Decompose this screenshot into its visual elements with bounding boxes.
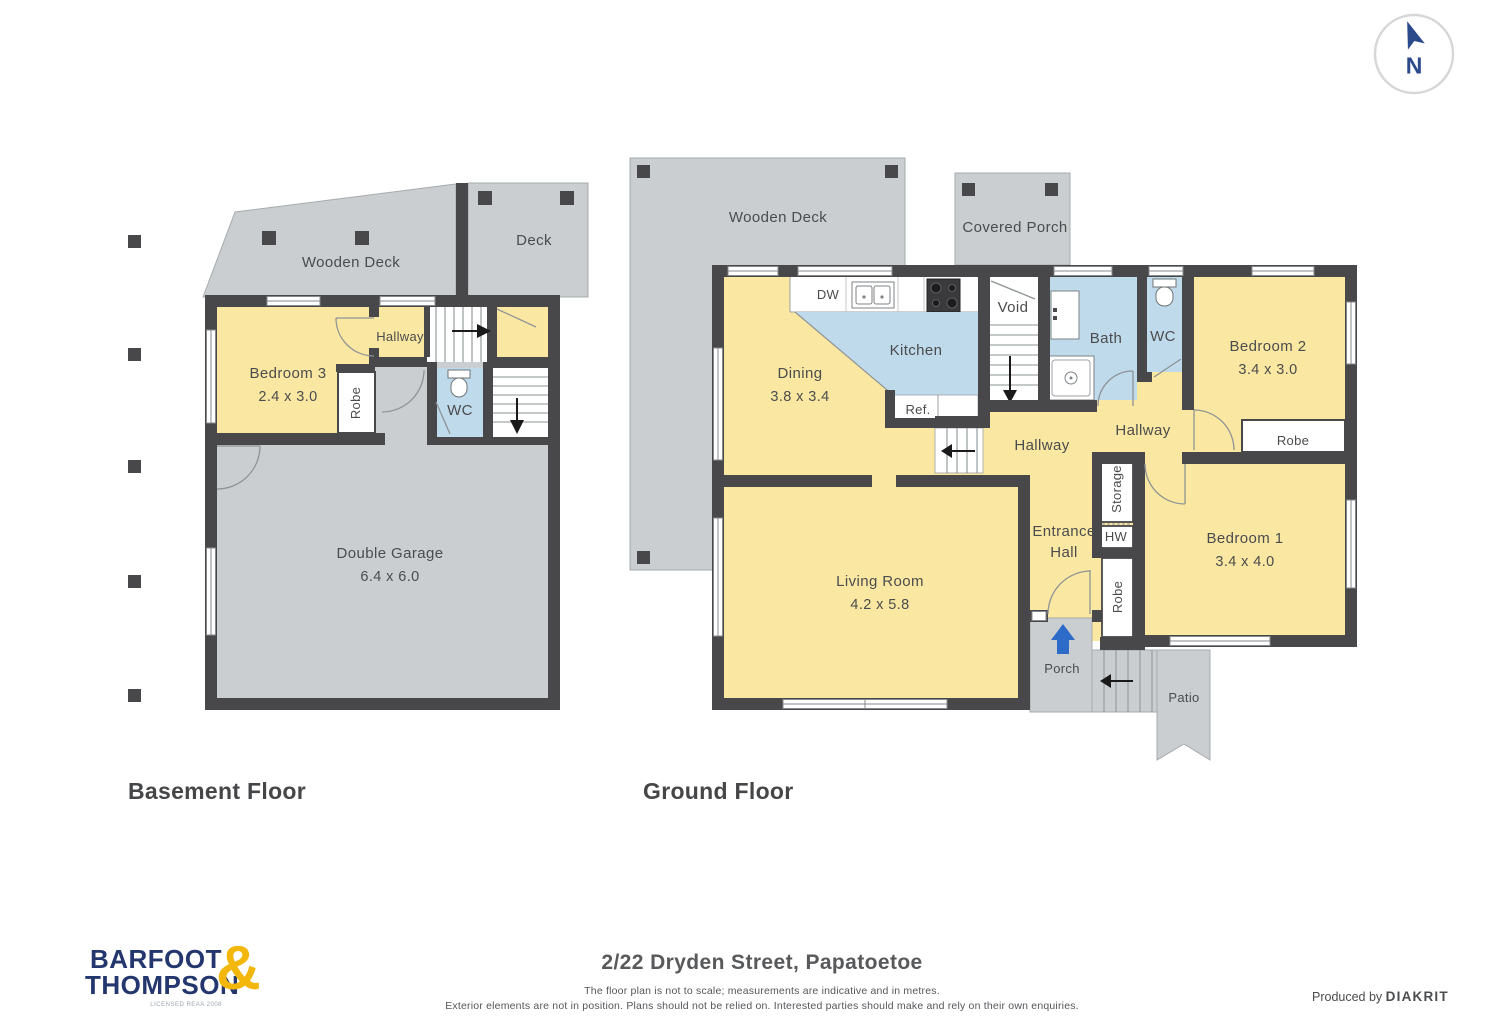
label-covered-porch: Covered Porch <box>962 217 1067 239</box>
label-bath: Bath <box>1090 328 1122 350</box>
logo-license-text: LICENSED REAA 2008 <box>85 1002 222 1008</box>
label-basement-wc: WC <box>447 400 473 422</box>
logo-ampersand: & <box>216 938 261 1000</box>
label-living-room: Living Room <box>836 571 924 593</box>
compass-north-label: N <box>1406 53 1423 80</box>
label-garage: Double Garage <box>337 543 444 565</box>
label-basement-wooden-deck: Wooden Deck <box>302 252 400 274</box>
labels-layer: Wooden Deck Deck Bedroom 3 2.4 x 3.0 Hal… <box>0 0 1500 1028</box>
dims-living-room: 4.2 x 5.8 <box>850 594 909 616</box>
label-hallway-right: Hallway <box>1115 420 1170 442</box>
dims-garage: 6.4 x 6.0 <box>360 566 419 588</box>
label-hot-water: HW <box>1105 526 1127 548</box>
label-bedroom3: Bedroom 3 <box>250 363 327 385</box>
dims-dining: 3.8 x 3.4 <box>770 386 829 408</box>
label-bedroom1: Bedroom 1 <box>1207 528 1284 550</box>
basement-floor-title: Basement Floor <box>128 778 306 805</box>
property-address: 2/22 Dryden Street, Papatoetoe <box>601 951 922 975</box>
dims-bedroom1: 3.4 x 4.0 <box>1215 551 1274 573</box>
label-dining: Dining <box>778 363 823 385</box>
label-void: Void <box>998 297 1029 319</box>
label-kitchen: Kitchen <box>890 340 943 362</box>
logo-line2: THOMPSON <box>85 972 222 998</box>
disclaimer-line2: Exterior elements are not in position. P… <box>445 1000 1079 1012</box>
dims-bedroom2: 3.4 x 3.0 <box>1238 359 1297 381</box>
label-bedroom1-robe: Robe <box>1107 581 1129 613</box>
disclaimer-line1: The floor plan is not to scale; measurem… <box>584 985 940 997</box>
label-storage: Storage <box>1106 465 1128 513</box>
label-fridge: Ref. <box>905 399 930 421</box>
barfoot-thompson-logo: BARFOOT THOMPSON & LICENSED REAA 2008 <box>85 946 263 1012</box>
label-ground-wooden-deck: Wooden Deck <box>729 207 827 229</box>
label-porch: Porch <box>1044 658 1079 680</box>
ground-floor-title: Ground Floor <box>643 778 794 805</box>
label-basement-deck: Deck <box>516 230 552 252</box>
label-patio: Patio <box>1168 687 1199 709</box>
label-dishwasher: DW <box>817 284 839 306</box>
produced-by-text: Produced by <box>1312 990 1382 1004</box>
label-bedroom2-robe: Robe <box>1277 430 1309 452</box>
label-entrance-hall: Entrance Hall <box>1020 521 1108 563</box>
floorplan-page: { "compass": { "n": "N" }, "floors": { "… <box>0 0 1500 1028</box>
label-ground-wc: WC <box>1150 326 1176 348</box>
label-bedroom2: Bedroom 2 <box>1230 336 1307 358</box>
label-hallway-left: Hallway <box>1014 435 1069 457</box>
label-basement-robe: Robe <box>345 387 367 419</box>
label-basement-hallway: Hallway <box>376 326 424 348</box>
producer-credit: Produced by DIAKRIT <box>1312 989 1449 1004</box>
logo-line1: BARFOOT <box>85 946 222 972</box>
dims-bedroom3: 2.4 x 3.0 <box>258 386 317 408</box>
producer-name: DIAKRIT <box>1386 989 1449 1004</box>
